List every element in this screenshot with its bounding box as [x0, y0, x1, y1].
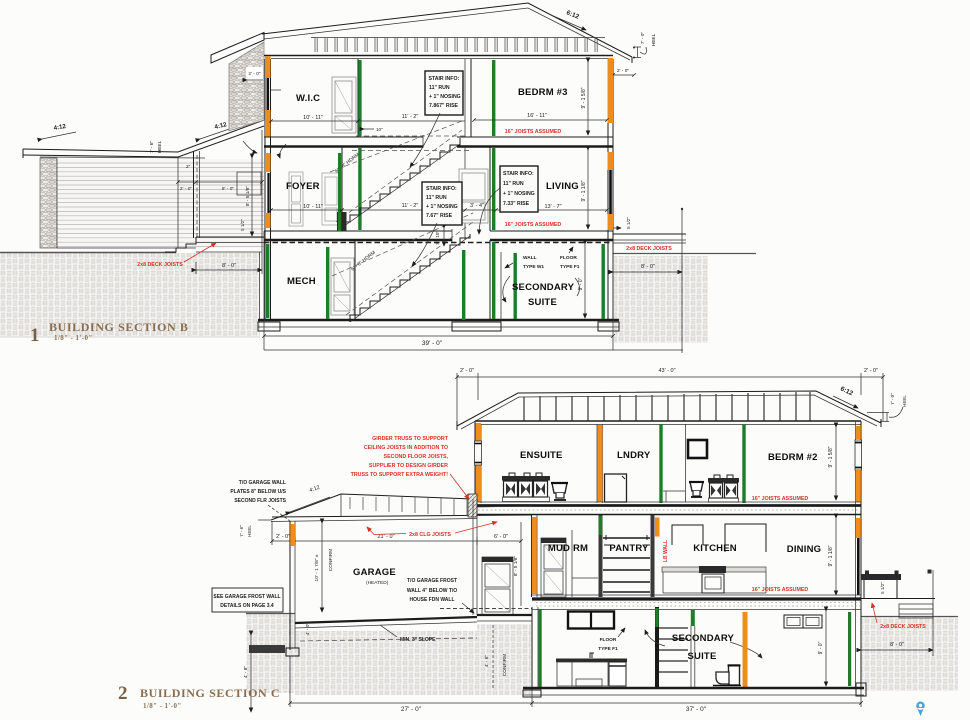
svg-text:8' - 0": 8' - 0": [222, 186, 235, 192]
svg-text:HEEL: HEEL: [651, 33, 657, 46]
svg-text:16" JOISTS ASSUMED: 16" JOISTS ASSUMED: [752, 496, 809, 502]
svg-text:2x8 DECK JOISTS: 2x8 DECK JOISTS: [626, 246, 672, 252]
svg-text:SUPPLIER TO DESIGN GIRDER: SUPPLIER TO DESIGN GIRDER: [369, 463, 448, 469]
svg-text:8' - 0": 8' - 0": [890, 642, 904, 648]
svg-text:+ 1" NOSING: + 1" NOSING: [503, 191, 535, 197]
svg-text:9' - 1 5/8": 9' - 1 5/8": [828, 446, 834, 467]
svg-text:FOYER: FOYER: [286, 181, 320, 192]
svg-text:STAIR INFO:: STAIR INFO:: [429, 76, 460, 82]
svg-text:2' - 0": 2' - 0": [617, 68, 630, 74]
svg-text:7' - 6": 7' - 6": [149, 141, 155, 154]
svg-text:DINING: DINING: [787, 544, 821, 555]
svg-text:LB WALL: LB WALL: [663, 540, 669, 562]
svg-text:6' - 0": 6' - 0": [494, 534, 508, 540]
svg-text:BEDRM #3: BEDRM #3: [518, 87, 568, 98]
svg-text:4' - 8": 4' - 8": [243, 666, 249, 679]
svg-text:CONFIRM: CONFIRM: [502, 654, 508, 676]
svg-text:5 1/2": 5 1/2": [880, 582, 885, 594]
svg-text:+ 1" NOSING: + 1" NOSING: [426, 204, 458, 210]
svg-text:9' - 0": 9' - 0": [818, 641, 824, 654]
svg-text:21' - 0": 21' - 0": [377, 534, 394, 540]
svg-text:BUILDING SECTION B: BUILDING SECTION B: [49, 320, 189, 334]
svg-text:STAIR INFO:: STAIR INFO:: [503, 171, 534, 177]
svg-text:7' - 0": 7' - 0": [890, 393, 895, 405]
svg-text:43' - 0": 43' - 0": [658, 368, 675, 374]
svg-text:4' - 0": 4' - 0": [305, 623, 311, 636]
svg-text:27' - 0": 27' - 0": [401, 706, 422, 713]
svg-text:GARAGE: GARAGE: [353, 567, 396, 578]
svg-text:9' - 1 1/8": 9' - 1 1/8": [828, 545, 834, 566]
svg-text:5 1/2": 5 1/2": [240, 219, 245, 231]
svg-text:FLOOR: FLOOR: [600, 637, 617, 643]
svg-text:16' - 11": 16' - 11": [527, 113, 547, 119]
svg-text:WALL: WALL: [523, 255, 537, 261]
svg-text:7.33" RISE: 7.33" RISE: [503, 201, 530, 207]
svg-text:5 1/2": 5 1/2": [626, 217, 631, 229]
svg-text:STAIR INFO:: STAIR INFO:: [426, 186, 457, 192]
svg-text:10' - 11": 10' - 11": [303, 115, 323, 121]
svg-text:2x8 CLG JOISTS: 2x8 CLG JOISTS: [409, 532, 451, 538]
svg-text:2' - 0": 2' - 0": [864, 368, 878, 374]
svg-text:DETAILS ON PAGE 3.4: DETAILS ON PAGE 3.4: [220, 603, 274, 609]
svg-text:9' - 1 5/8": 9' - 1 5/8": [581, 87, 587, 108]
svg-text:SECONDARY: SECONDARY: [672, 633, 735, 644]
svg-text:11" RUN: 11" RUN: [429, 85, 450, 91]
svg-text:10": 10": [376, 127, 383, 132]
svg-text:LIVING: LIVING: [546, 181, 579, 192]
svg-text:SECONDARY: SECONDARY: [512, 282, 575, 293]
svg-text:11' - 2": 11' - 2": [402, 114, 419, 120]
svg-text:MECH: MECH: [287, 276, 316, 287]
svg-text:+ 1" NOSING: + 1" NOSING: [429, 94, 461, 100]
svg-text:HEEL: HEEL: [247, 525, 252, 537]
svg-text:SUITE: SUITE: [528, 297, 557, 308]
svg-text:7' - 6": 7' - 6": [239, 525, 244, 537]
svg-text:39' - 0": 39' - 0": [422, 340, 443, 347]
svg-text:8' - 5 1/8": 8' - 5 1/8": [245, 186, 251, 207]
svg-text:KITCHEN: KITCHEN: [693, 543, 737, 554]
svg-text:8' - 0": 8' - 0": [222, 263, 236, 269]
svg-text:BUILDING SECTION C: BUILDING SECTION C: [140, 686, 280, 700]
svg-text:SEE GARAGE FROST WALL: SEE GARAGE FROST WALL: [213, 594, 280, 600]
svg-text:ENSUITE: ENSUITE: [520, 450, 563, 461]
svg-text:2' - 0": 2' - 0": [276, 534, 290, 540]
svg-text:1/8" - 1'-0": 1/8" - 1'-0": [143, 702, 182, 710]
svg-text:HOUSE FDN WALL: HOUSE FDN WALL: [410, 597, 455, 603]
svg-text:LNDRY: LNDRY: [617, 450, 651, 461]
svg-text:10' - 1 7/8" ±: 10' - 1 7/8" ±: [314, 554, 320, 581]
svg-text:2x8 DECK JOISTS: 2x8 DECK JOISTS: [880, 624, 926, 630]
svg-text:GIRDER TRUSS TO SUPPORT: GIRDER TRUSS TO SUPPORT: [372, 436, 449, 442]
svg-text:13' - 7": 13' - 7": [544, 204, 561, 210]
svg-text:W.I.C: W.I.C: [296, 93, 320, 104]
svg-text:(HEATED): (HEATED): [366, 580, 389, 586]
svg-text:8' - 0": 8' - 0": [641, 264, 655, 270]
svg-text:11" RUN: 11" RUN: [503, 181, 524, 187]
svg-text:HEEL: HEEL: [157, 140, 163, 153]
svg-text:WALL 4" BELOW T/O: WALL 4" BELOW T/O: [407, 588, 457, 594]
svg-text:MIN. 3" SLOPE: MIN. 3" SLOPE: [400, 637, 436, 643]
svg-text:16" JOISTS ASSUMED: 16" JOISTS ASSUMED: [505, 222, 562, 228]
svg-text:11' - 2": 11' - 2": [402, 203, 419, 209]
svg-text:4' - 6": 4' - 6": [484, 655, 490, 668]
svg-text:TYPE F1: TYPE F1: [598, 646, 618, 652]
svg-text:SUITE: SUITE: [688, 651, 717, 662]
svg-text:7.67" RISE: 7.67" RISE: [426, 213, 453, 219]
svg-text:CEILING JOISTS IN ADDITION TO: CEILING JOISTS IN ADDITION TO: [364, 445, 448, 451]
svg-text:PLATES 8" BELOW U/S: PLATES 8" BELOW U/S: [230, 489, 286, 495]
svg-text:2' - 0": 2' - 0": [460, 368, 474, 374]
svg-text:16" JOISTS ASSUMED: 16" JOISTS ASSUMED: [752, 587, 809, 593]
svg-text:TYPE W1: TYPE W1: [523, 264, 544, 270]
svg-text:TYPE F1: TYPE F1: [560, 264, 580, 270]
svg-text:7' - 10": 7' - 10": [435, 231, 440, 245]
svg-text:T/O GARAGE FROST: T/O GARAGE FROST: [407, 578, 457, 584]
svg-text:MUD RM: MUD RM: [548, 543, 588, 554]
svg-text:2x8 DECK JOISTS: 2x8 DECK JOISTS: [137, 262, 183, 268]
svg-text:SECOND FLOOR JOISTS,: SECOND FLOOR JOISTS,: [384, 454, 449, 460]
svg-text:9' - 1 1/8": 9' - 1 1/8": [581, 180, 587, 201]
svg-text:37' - 0": 37' - 0": [686, 706, 707, 713]
svg-text:11" RUN: 11" RUN: [426, 195, 447, 201]
svg-text:7' - 0": 7' - 0": [640, 32, 646, 45]
svg-text:SECOND FLR JOISTS: SECOND FLR JOISTS: [234, 498, 286, 504]
svg-text:2' - 0": 2' - 0": [248, 71, 261, 77]
svg-text:2": 2": [186, 164, 191, 170]
svg-text:T/O GARAGE WALL: T/O GARAGE WALL: [239, 480, 286, 486]
svg-text:HEEL: HEEL: [902, 395, 907, 407]
svg-text:10' - 11": 10' - 11": [303, 204, 323, 210]
svg-text:FLOOR: FLOOR: [560, 255, 577, 261]
svg-text:TRUSS TO SUPPORT EXTRA WEIGHT!: TRUSS TO SUPPORT EXTRA WEIGHT!: [351, 472, 449, 478]
svg-text:16" JOISTS ASSUMED: 16" JOISTS ASSUMED: [505, 129, 562, 135]
svg-text:CONFIRM: CONFIRM: [328, 549, 334, 571]
svg-text:3' - 4": 3' - 4": [470, 203, 484, 209]
svg-text:1/8" - 1'-0": 1/8" - 1'-0": [54, 334, 93, 342]
svg-text:PANTRY: PANTRY: [609, 543, 649, 554]
svg-text:2' - 0": 2' - 0": [180, 186, 193, 192]
svg-text:BEDRM #2: BEDRM #2: [768, 452, 818, 463]
svg-text:8' - 5 1/8": 8' - 5 1/8": [513, 556, 519, 577]
svg-text:1: 1: [30, 325, 40, 346]
svg-text:7.867" RISE: 7.867" RISE: [429, 103, 459, 109]
svg-text:2: 2: [118, 683, 128, 704]
